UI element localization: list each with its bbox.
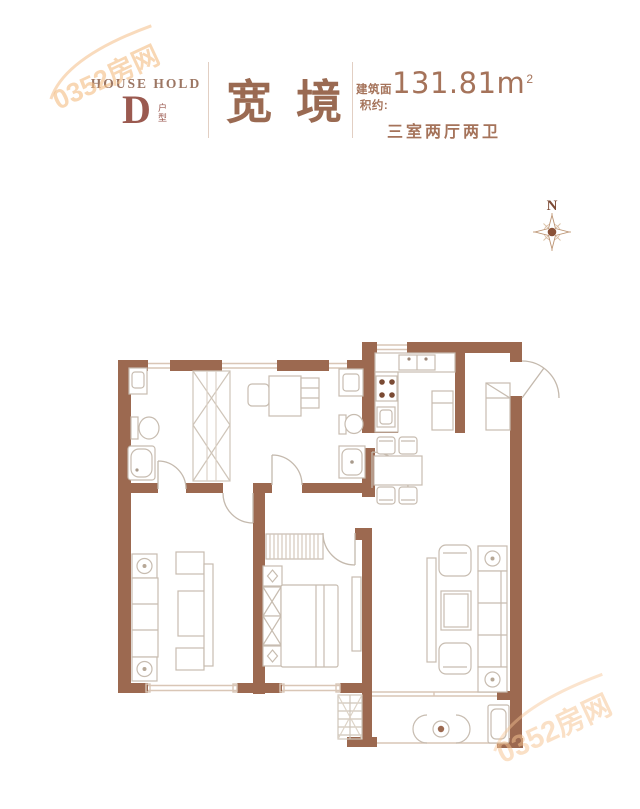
chair-icon [399, 437, 417, 454]
desk-icon [269, 376, 301, 416]
armchair-icon [439, 545, 471, 576]
unit-letter: D [122, 88, 151, 132]
stove-icon [376, 376, 397, 401]
area-value: 131.81m [392, 66, 525, 100]
pillow-icon [263, 587, 281, 616]
shower-basin-icon [339, 446, 365, 478]
pillow-icon [263, 616, 281, 645]
toilet-icon [339, 415, 363, 435]
closet [193, 371, 230, 481]
coffee-table-icon [441, 591, 471, 630]
door-arc [223, 493, 253, 523]
toilet-icon [131, 417, 159, 439]
bathtub-icon [128, 446, 155, 480]
header-divider [352, 62, 353, 138]
master-bedroom [263, 534, 361, 667]
area-label: 建筑面积约: [356, 81, 392, 113]
study [248, 376, 319, 416]
nightstand-icon [263, 646, 282, 666]
couch-icon [132, 578, 158, 657]
ac-platform [338, 695, 362, 739]
area-superscript: 2 [526, 72, 533, 86]
nightstand-icon [263, 566, 282, 586]
bedroom-1 [132, 552, 213, 681]
page-title: 宽境 [226, 66, 366, 132]
side-table-icon [478, 546, 507, 571]
bed-icon [281, 585, 338, 667]
wardrobe-icon [266, 534, 323, 559]
layout-spec: 三室两厅两卫 [356, 118, 532, 142]
bathroom-1 [128, 368, 159, 480]
area-info: 建筑面积约: 131.81m 2 三室两厅两卫 [356, 66, 532, 142]
chair-icon [377, 487, 395, 504]
tv-cabinet-icon [204, 564, 213, 666]
kitchen [375, 353, 455, 432]
floor-plan-page: HOUSE HOLD D 户型 宽境 建筑面积约: 131.81m 2 三室两厅… [0, 0, 640, 809]
fridge-icon [432, 391, 453, 430]
header-divider [208, 62, 209, 138]
door-arc [158, 461, 186, 489]
cabinet-icon [301, 378, 319, 408]
stool-icon [176, 648, 204, 670]
living-room [427, 545, 507, 692]
door-arc [323, 533, 355, 565]
side-table-icon [132, 554, 157, 578]
balcony-chair-icon [456, 715, 470, 743]
bathroom-2 [339, 369, 365, 478]
entry-door-arc [522, 361, 559, 398]
chair-icon [399, 487, 417, 504]
tv-cabinet-icon [427, 558, 436, 662]
chair-icon [248, 384, 269, 406]
dining-table [374, 456, 422, 485]
furniture [128, 353, 510, 743]
dining-area [374, 437, 422, 504]
foyer [486, 383, 510, 430]
stool-icon [176, 552, 204, 574]
unit-type-label: 户型 [158, 103, 169, 123]
sofa-icon [478, 571, 507, 667]
door-arc [272, 455, 302, 485]
compass-icon: N [533, 198, 571, 251]
tv-cabinet-icon [352, 577, 361, 651]
side-table-icon [132, 657, 157, 681]
armchair-icon [439, 643, 471, 674]
side-table-icon [478, 667, 507, 692]
balcony-chair-icon [413, 715, 427, 743]
compass-north-label: N [547, 198, 558, 214]
balcony-table-icon [433, 721, 449, 737]
chair-icon [377, 437, 395, 454]
